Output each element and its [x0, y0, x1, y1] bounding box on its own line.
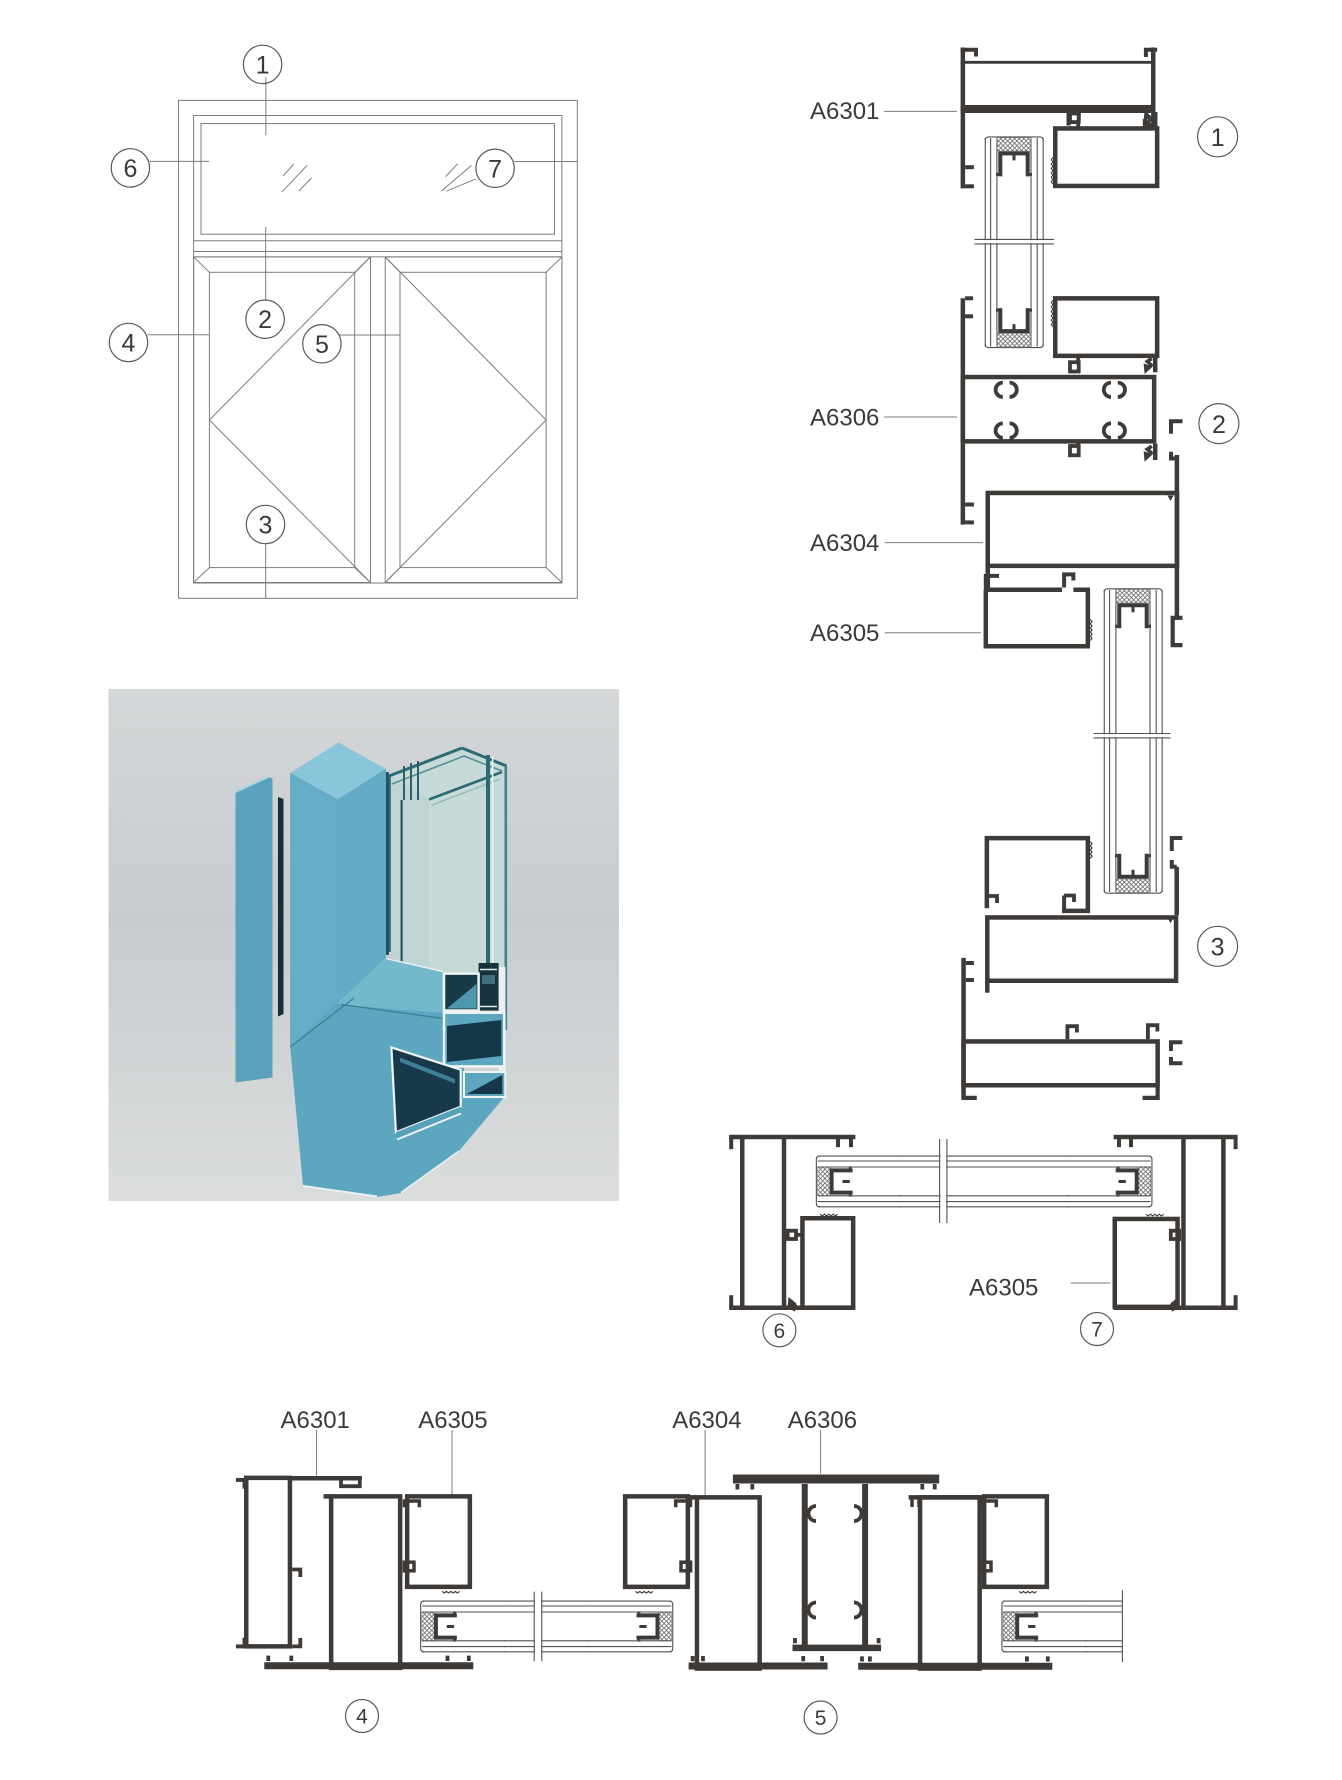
- svg-text:3: 3: [259, 512, 273, 540]
- svg-text:6: 6: [123, 155, 137, 183]
- svg-text:1: 1: [256, 51, 270, 79]
- svg-text:A6304: A6304: [672, 1407, 741, 1434]
- svg-text:4: 4: [122, 330, 136, 358]
- svg-text:5: 5: [315, 331, 329, 359]
- svg-text:4: 4: [356, 1706, 368, 1729]
- svg-text:A6304: A6304: [810, 530, 879, 557]
- svg-text:A6301: A6301: [281, 1407, 350, 1434]
- svg-text:A6301: A6301: [810, 98, 879, 125]
- svg-text:A6305: A6305: [810, 620, 879, 647]
- svg-text:1: 1: [1211, 124, 1225, 152]
- svg-text:A6306: A6306: [810, 405, 879, 432]
- svg-text:7: 7: [1091, 1319, 1103, 1342]
- svg-text:3: 3: [1211, 934, 1225, 962]
- svg-text:2: 2: [258, 306, 272, 334]
- svg-text:5: 5: [815, 1707, 827, 1730]
- svg-text:A6306: A6306: [788, 1407, 857, 1434]
- svg-text:A6305: A6305: [418, 1407, 487, 1434]
- svg-text:7: 7: [488, 155, 502, 183]
- svg-text:2: 2: [1212, 411, 1226, 439]
- svg-text:A6305: A6305: [969, 1274, 1038, 1301]
- svg-text:6: 6: [774, 1320, 786, 1343]
